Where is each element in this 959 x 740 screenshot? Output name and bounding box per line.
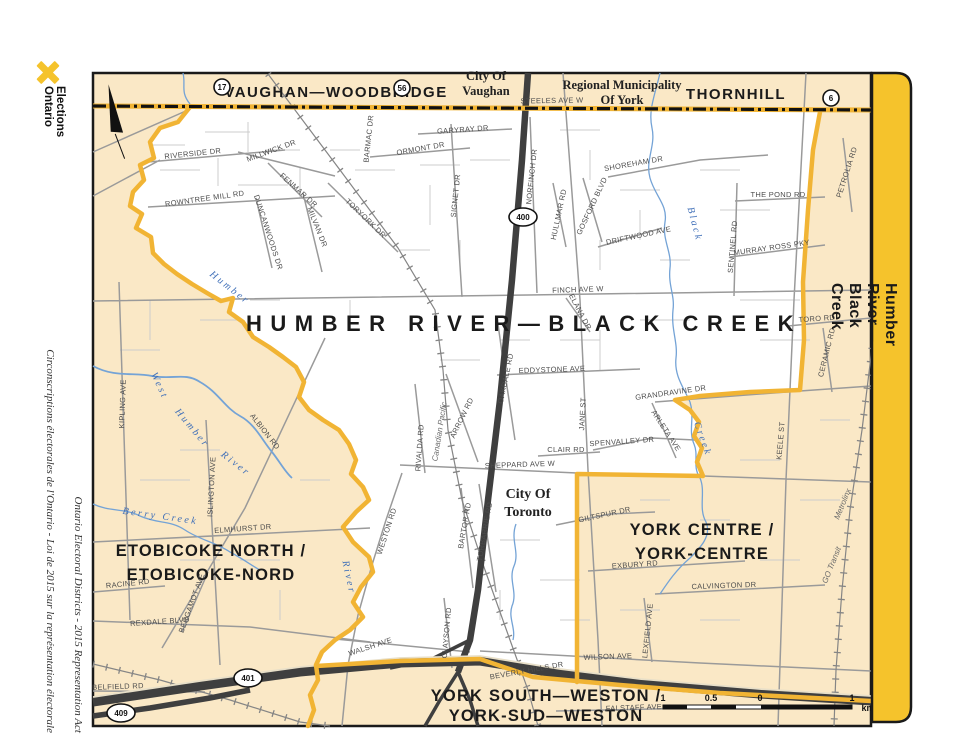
street-label: CLAIR RD <box>547 445 585 454</box>
svg-text:6: 6 <box>829 94 834 103</box>
highway-shield: 400 <box>509 208 537 226</box>
street-label: WILSON AVE <box>583 651 632 662</box>
electoral-district-map-page: HUMBER RIVER—BLACK CREEKVAUGHAN—WOODBRID… <box>0 0 959 740</box>
municipality-label: Vaughan <box>462 84 510 98</box>
map-caption: Ontario Electoral Districts - 2015 Repre… <box>43 268 85 733</box>
scale-tick: 1 <box>849 693 854 703</box>
district-map: HUMBER RIVER—BLACK CREEKVAUGHAN—WOODBRID… <box>0 0 959 740</box>
scale-tick: 1 <box>660 693 665 703</box>
street-label: STEELES AVE W <box>520 95 584 105</box>
district-label: YORK CENTRE / <box>630 521 775 539</box>
street-label: KIPLING AVE <box>117 379 128 428</box>
district-label: ETOBICOKE NORTH / <box>116 542 307 560</box>
street-label: FINCH AVE W <box>552 284 604 295</box>
street-label: BELFIELD RD <box>92 681 144 692</box>
svg-text:400: 400 <box>516 213 530 222</box>
scale-unit: km <box>861 703 874 713</box>
scale-tick: 0 <box>757 693 762 703</box>
edge-band-label: Humber River—Black Creek <box>827 283 899 346</box>
street-label: JANE ST <box>577 397 588 430</box>
highway-shield: 401 <box>234 669 262 687</box>
caption-french: Circonscriptions électorales de l'Ontari… <box>44 349 56 733</box>
municipality-label: City Of <box>506 487 551 502</box>
district-label: ETOBICOKE-NORD <box>127 566 296 584</box>
caption-english: Ontario Electoral Districts - 2015 Repre… <box>72 497 84 733</box>
highway-shield: 56 <box>394 80 410 96</box>
highway-shield: 17 <box>214 79 230 95</box>
highway-shield: 409 <box>107 704 135 722</box>
elections-ontario-x-icon <box>35 59 61 85</box>
district-label: VAUGHAN—WOODBRIDGE <box>224 84 447 101</box>
municipality-label: Of York <box>601 93 644 107</box>
elections-ontario-logo: Elections Ontario <box>42 86 66 137</box>
municipality-label: Toronto <box>504 505 551 520</box>
street-label: THE POND RD <box>751 190 806 199</box>
scale-bar <box>663 705 852 709</box>
scale-tick: 0.5 <box>705 693 718 703</box>
municipality-label: Regional Municipality <box>562 78 682 92</box>
svg-text:17: 17 <box>218 83 227 92</box>
svg-text:56: 56 <box>398 84 407 93</box>
svg-text:401: 401 <box>241 674 255 683</box>
svg-text:409: 409 <box>114 709 128 718</box>
municipality-label: City Of <box>466 69 507 83</box>
highway-shield: 6 <box>823 90 839 106</box>
district-label: THORNHILL <box>686 86 786 103</box>
map-title: HUMBER RIVER—BLACK CREEK <box>246 311 802 336</box>
